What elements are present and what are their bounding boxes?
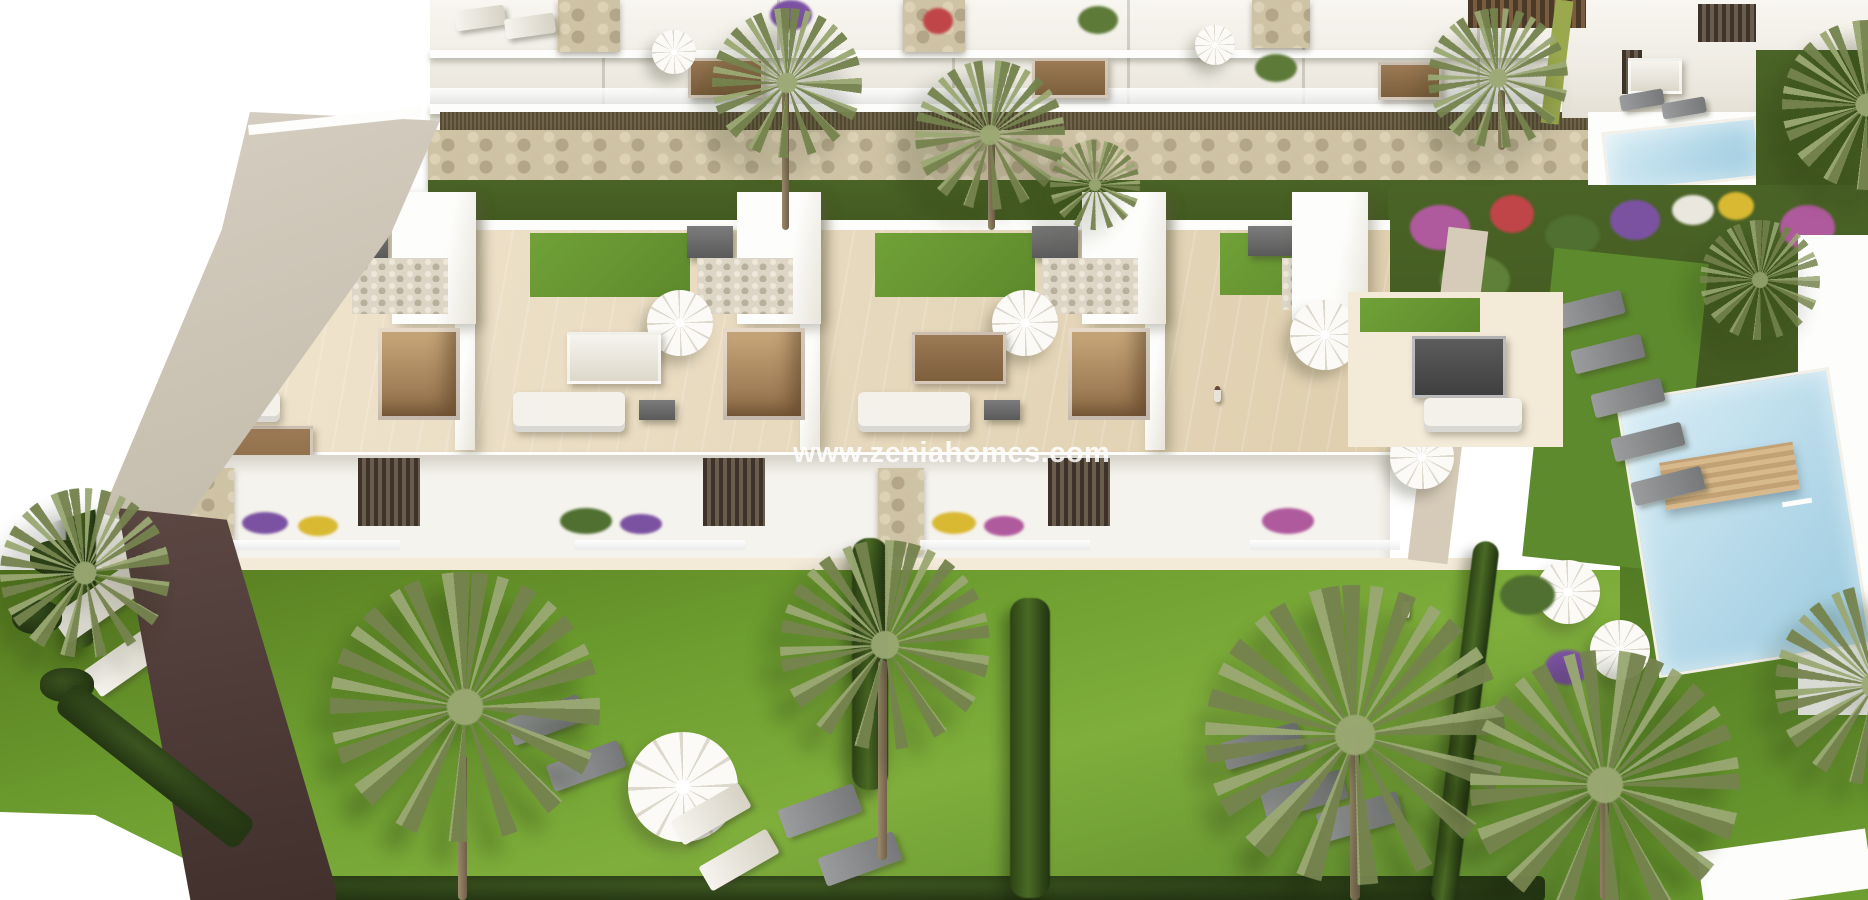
- shrub: [1500, 575, 1555, 615]
- roof-dining-table: [567, 332, 661, 384]
- roof-lawn: [1360, 298, 1480, 332]
- balcony-railing: [1250, 540, 1400, 550]
- utility-box: [1032, 226, 1078, 258]
- parasol: [1195, 25, 1235, 65]
- window: [703, 458, 765, 526]
- outdoor-sofa: [1424, 398, 1522, 432]
- balcony-flowers-purple: [242, 512, 288, 534]
- roof-dining-table: [1412, 336, 1506, 398]
- roof-lawn: [875, 233, 1035, 297]
- outdoor-sofa: [513, 392, 625, 432]
- window: [358, 458, 420, 526]
- stairwell: [723, 328, 805, 420]
- stone-feature-wall: [558, 0, 620, 52]
- balcony-railing: [230, 540, 400, 550]
- watermark: www.zeniahomes.com: [793, 437, 1110, 470]
- palm-tree: [330, 572, 600, 842]
- bougainvillea-purple: [1610, 200, 1660, 240]
- utility-box: [687, 226, 733, 258]
- utility-box: [1248, 226, 1292, 256]
- balcony-railing: [575, 540, 745, 550]
- outdoor-sofa: [858, 392, 970, 432]
- balcony-railing: [920, 540, 1090, 550]
- balcony-flowers-purple: [620, 514, 662, 534]
- cypress-hedge: [1010, 598, 1050, 898]
- roof-dining-table: [912, 332, 1006, 384]
- coffee-table: [639, 400, 675, 420]
- bougainvillea-red: [1490, 195, 1534, 233]
- balcony-flowers-green: [560, 508, 612, 534]
- balcony-flowers-magenta: [1262, 508, 1314, 534]
- green-plant: [1255, 54, 1297, 82]
- architectural-render: www.zeniahomes.com: [0, 0, 1868, 900]
- palm-tree: [712, 8, 862, 158]
- coffee-table: [984, 400, 1020, 420]
- villa-window: [1698, 4, 1756, 42]
- balcony-flowers-yellow: [932, 512, 976, 534]
- stairwell: [1068, 328, 1150, 420]
- stone-feature-wall: [1252, 0, 1310, 48]
- parasol: [652, 30, 696, 74]
- balcony-flowers-yellow: [298, 516, 338, 536]
- roof-lawn: [530, 233, 690, 297]
- pebble-bed: [697, 258, 793, 314]
- stairwell: [378, 328, 460, 420]
- balcony-flowers-magenta: [984, 516, 1024, 536]
- white-flower-shrub: [1672, 195, 1714, 225]
- red-plant: [923, 8, 953, 34]
- banana-plant: [1700, 220, 1820, 340]
- pebble-bed: [1042, 258, 1138, 314]
- green-plant: [1078, 6, 1118, 34]
- yellow-flower-shrub: [1718, 192, 1754, 220]
- person: [1214, 386, 1221, 402]
